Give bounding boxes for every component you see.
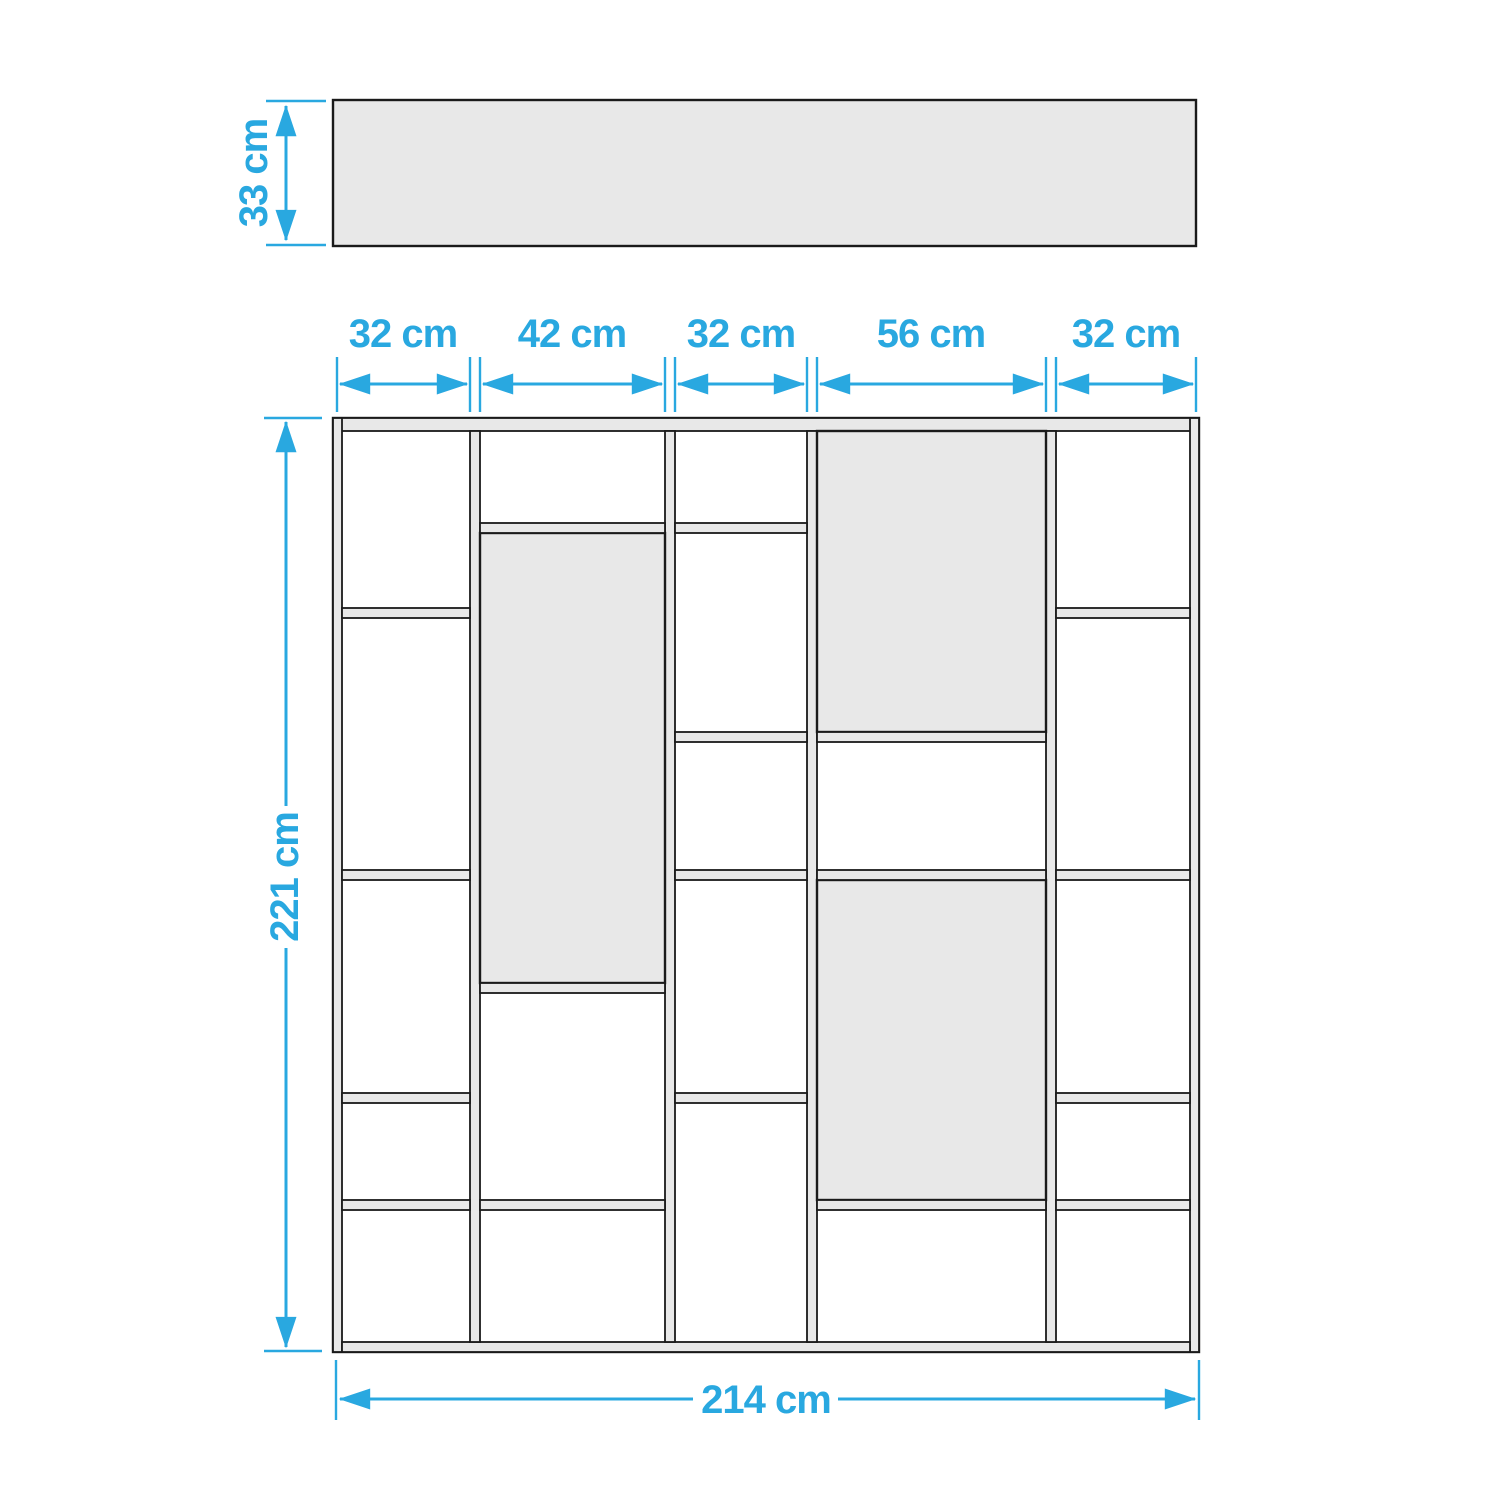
dimension-column-widths: 32 cm 42 cm 32 cm 56 cm 32 cm [337,312,1196,412]
shelf [342,608,470,618]
dimension-depth: 33 cm [232,101,326,245]
vertical-divider [1046,431,1056,1342]
vertical-divider [470,431,480,1342]
dimension-height: 221 cm [263,418,322,1351]
shelf [1056,870,1190,880]
top-view [333,100,1196,246]
furniture-dimension-diagram: 33 cm [0,0,1500,1500]
door-panel [817,431,1046,732]
dimension-total-width: 214 cm [336,1360,1199,1422]
dimension-label-total-width: 214 cm [701,1378,831,1422]
cabinet-bottom-panel [342,1342,1190,1352]
shelf [480,1200,665,1210]
top-view-panel [333,100,1196,246]
shelf [675,523,807,533]
vertical-divider [665,431,675,1342]
shelf [817,732,1046,742]
dimension-label-column-5: 32 cm [1072,312,1180,356]
dimension-label-column-3: 32 cm [687,312,795,356]
shelf [342,870,470,880]
shelf [480,983,665,993]
shelf [342,1200,470,1210]
shelf [817,1200,1046,1210]
shelf [675,870,807,880]
front-view [333,418,1199,1352]
dimension-label-column-4: 56 cm [877,312,985,356]
shelf [480,523,665,533]
shelf [1056,1200,1190,1210]
door-panel [480,533,665,983]
shelf [675,732,807,742]
shelf [342,1093,470,1103]
shelf [1056,608,1190,618]
vertical-divider [807,431,817,1342]
dimension-label-height: 221 cm [263,812,307,942]
dimension-label-depth: 33 cm [232,119,276,227]
shelf [1056,1093,1190,1103]
shelf [675,1093,807,1103]
cabinet-left-side-panel [333,418,342,1352]
cabinet-right-side-panel [1190,418,1199,1352]
cabinet-outer-frame [333,418,1199,1352]
shelf [817,870,1046,880]
cabinet-top-panel [333,418,1199,431]
dimension-label-column-1: 32 cm [349,312,457,356]
door-panel [817,880,1046,1200]
dimension-label-column-2: 42 cm [518,312,626,356]
